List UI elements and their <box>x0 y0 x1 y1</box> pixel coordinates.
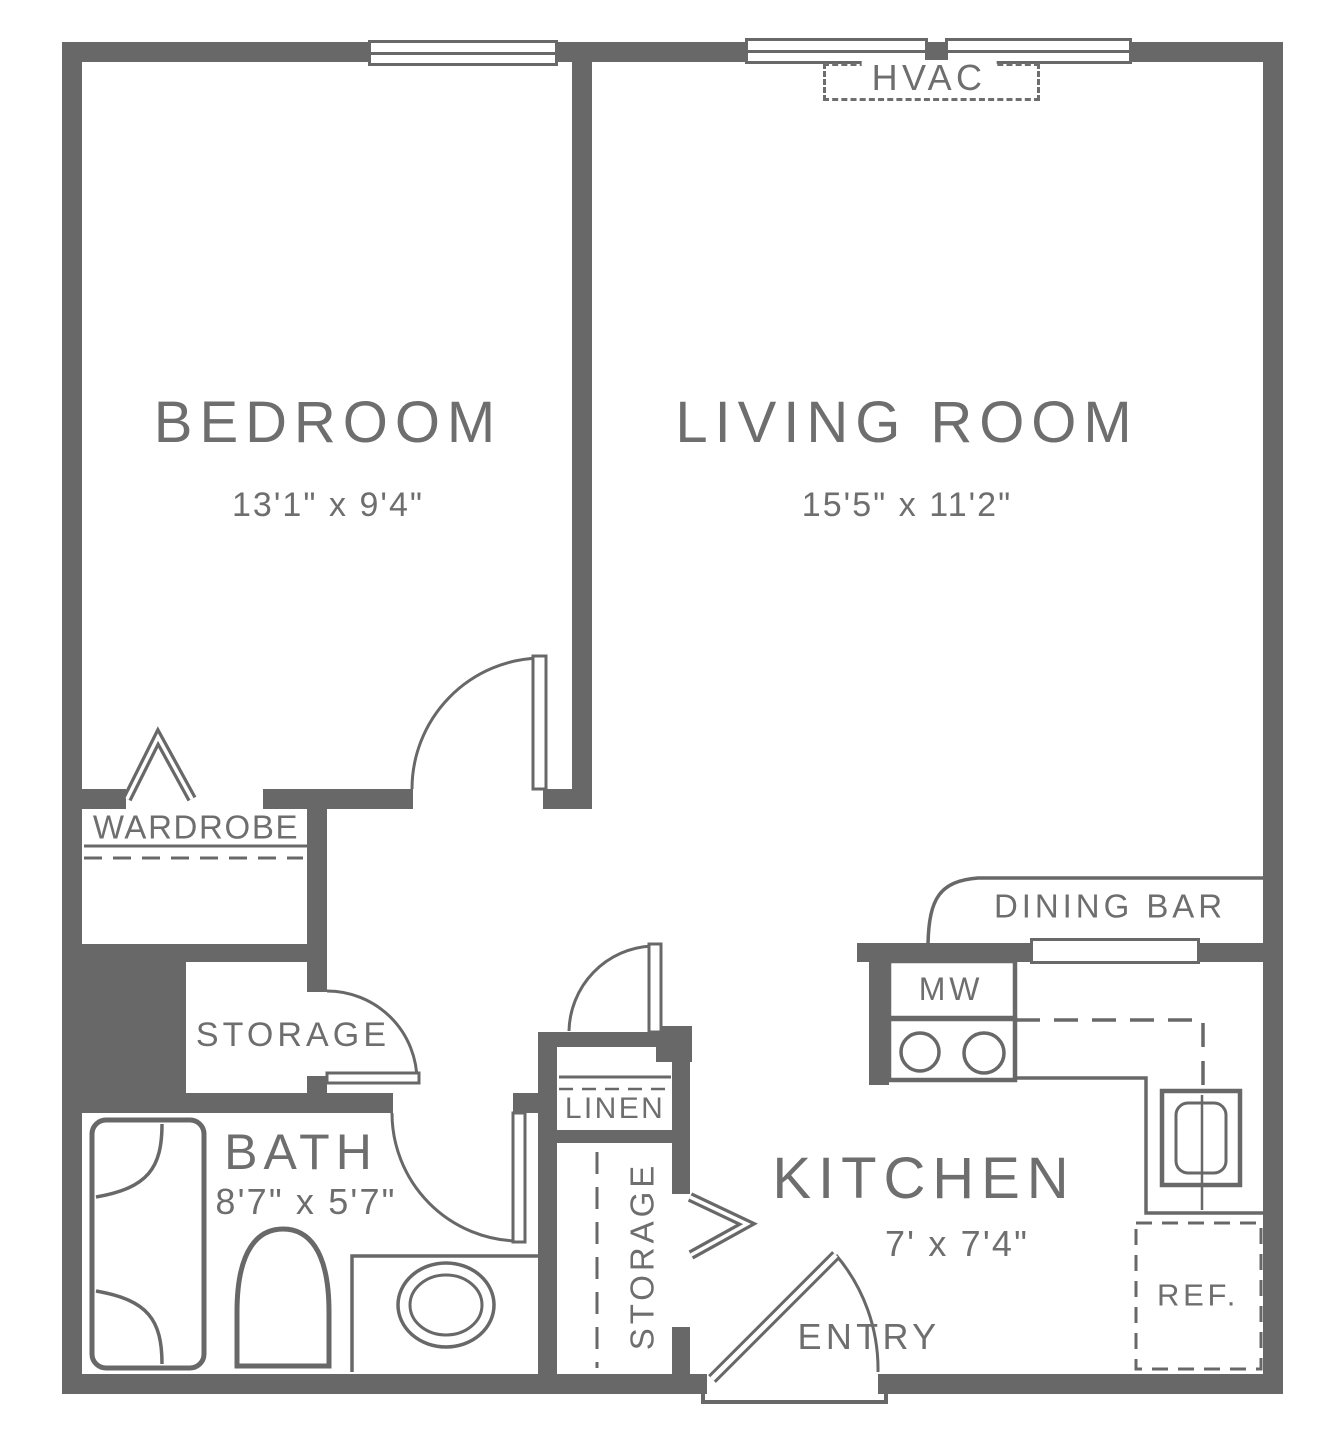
tall-storage-label: STORAGE <box>626 1162 659 1350</box>
wardrobe-shelf <box>84 846 307 858</box>
microwave-label: MW <box>919 973 984 1005</box>
bath-label: BATH <box>224 1127 378 1177</box>
wardrobe-label: WARDROBE <box>93 811 299 844</box>
bath-door <box>392 1113 525 1242</box>
toilet <box>237 1229 329 1366</box>
hall-storage-label: STORAGE <box>196 1018 390 1052</box>
hvac-label: HVAC <box>862 60 997 96</box>
hall-door <box>569 944 661 1032</box>
linen-label: LINEN <box>565 1094 665 1124</box>
bathtub <box>92 1120 204 1368</box>
living-room-dims: 15'5" x 11'2" <box>802 488 1012 522</box>
floor-plan: BEDROOM 13'1" x 9'4" LIVING ROOM 15'5" x… <box>0 0 1340 1446</box>
kitchen-sink <box>1162 1091 1240 1210</box>
refrigerator-label: REF. <box>1157 1280 1239 1311</box>
entry-threshold <box>703 1376 886 1402</box>
kitchen-label: KITCHEN <box>772 1150 1075 1208</box>
bedroom-label: BEDROOM <box>154 394 502 452</box>
tall-storage-bifold-door <box>690 1197 747 1255</box>
bedroom-door <box>412 656 546 789</box>
living-room-label: LIVING ROOM <box>675 394 1138 452</box>
fixtures-layer <box>0 0 1340 1446</box>
wardrobe-bifold-door <box>127 737 192 799</box>
bedroom-dims: 13'1" x 9'4" <box>232 488 424 522</box>
dining-bar-label: DINING BAR <box>994 890 1226 923</box>
bath-dims: 8'7" x 5'7" <box>215 1184 396 1220</box>
range-stove <box>889 1019 1015 1080</box>
kitchen-dims: 7' x 7'4" <box>885 1226 1029 1262</box>
entry-label: ENTRY <box>798 1319 941 1355</box>
linen-shelf <box>559 1077 671 1089</box>
bath-vanity-sink <box>352 1256 538 1372</box>
